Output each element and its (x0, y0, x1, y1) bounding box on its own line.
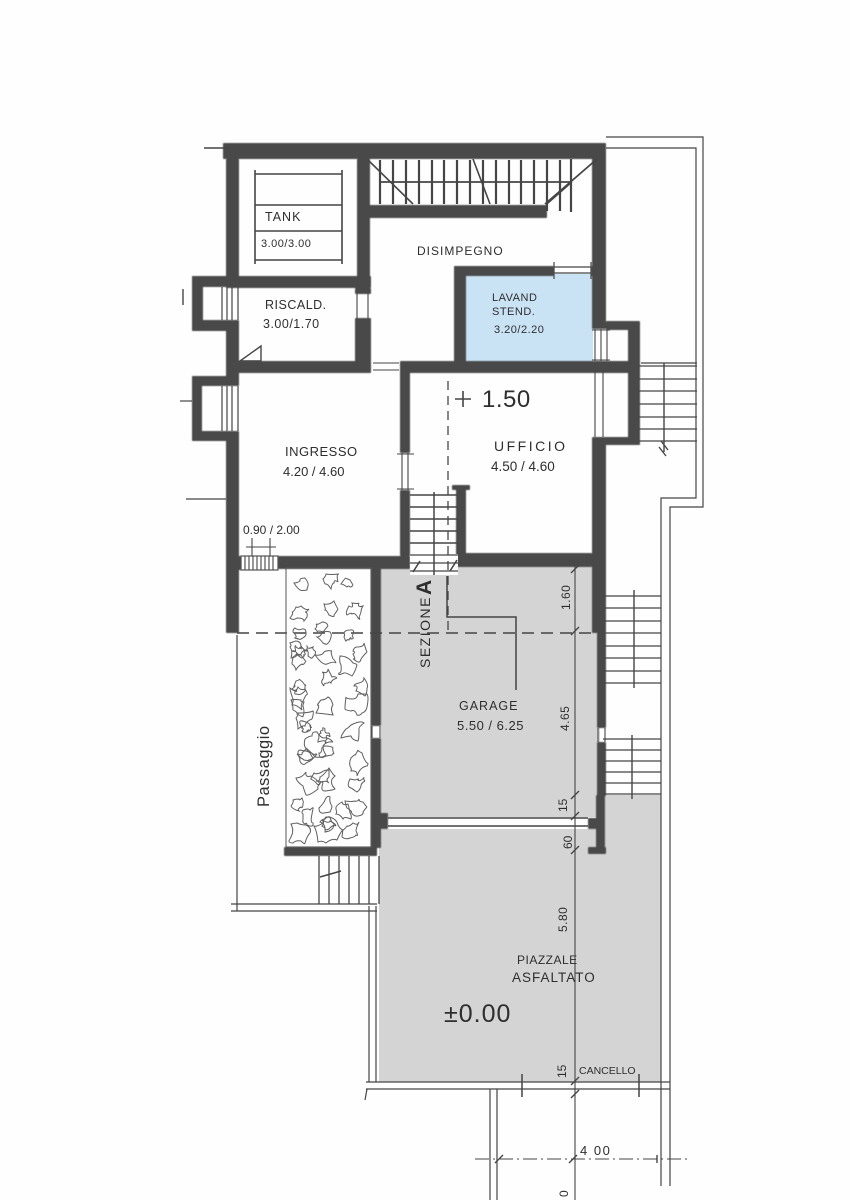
svg-text:15: 15 (556, 798, 570, 812)
svg-text:3.20/2.20: 3.20/2.20 (494, 324, 544, 336)
svg-text:RISCALD.: RISCALD. (265, 298, 327, 312)
svg-text:INGRESSO: INGRESSO (285, 444, 358, 459)
svg-text:Passaggio: Passaggio (255, 725, 273, 807)
svg-text:PIAZZALE: PIAZZALE (517, 953, 578, 967)
svg-text:3.00/3.00: 3.00/3.00 (261, 238, 311, 250)
svg-text:DISIMPEGNO: DISIMPEGNO (417, 244, 504, 258)
svg-text:4.50 / 4.60: 4.50 / 4.60 (491, 459, 555, 474)
svg-text:LAVAND: LAVAND (492, 292, 537, 304)
svg-text:ASFALTATO: ASFALTATO (512, 970, 596, 985)
svg-text:1.60: 1.60 (559, 585, 573, 610)
svg-text:A: A (413, 579, 436, 595)
svg-text:5.80: 5.80 (556, 907, 570, 932)
svg-text:CANCELLO: CANCELLO (579, 1065, 636, 1077)
svg-text:1.50: 1.50 (482, 386, 531, 413)
svg-text:SEZIONE: SEZIONE (417, 596, 433, 668)
svg-text:4.20 / 4.60: 4.20 / 4.60 (283, 464, 344, 479)
svg-text:0: 0 (557, 1190, 571, 1197)
svg-text:TANK: TANK (265, 210, 301, 224)
svg-text:4.65: 4.65 (558, 706, 572, 731)
svg-text:3.00/1.70: 3.00/1.70 (263, 317, 320, 331)
svg-text:0.90 / 2.00: 0.90 / 2.00 (243, 523, 300, 537)
svg-text:60: 60 (561, 835, 575, 849)
svg-text:4 00: 4 00 (580, 1143, 611, 1158)
svg-text:STEND.: STEND. (492, 306, 535, 318)
svg-text:5.50 / 6.25: 5.50 / 6.25 (457, 718, 524, 733)
svg-text:UFFICIO: UFFICIO (494, 438, 568, 454)
svg-text:GARAGE: GARAGE (459, 699, 519, 713)
svg-text:±0.00: ±0.00 (444, 1000, 511, 1028)
svg-text:15: 15 (555, 1064, 569, 1078)
